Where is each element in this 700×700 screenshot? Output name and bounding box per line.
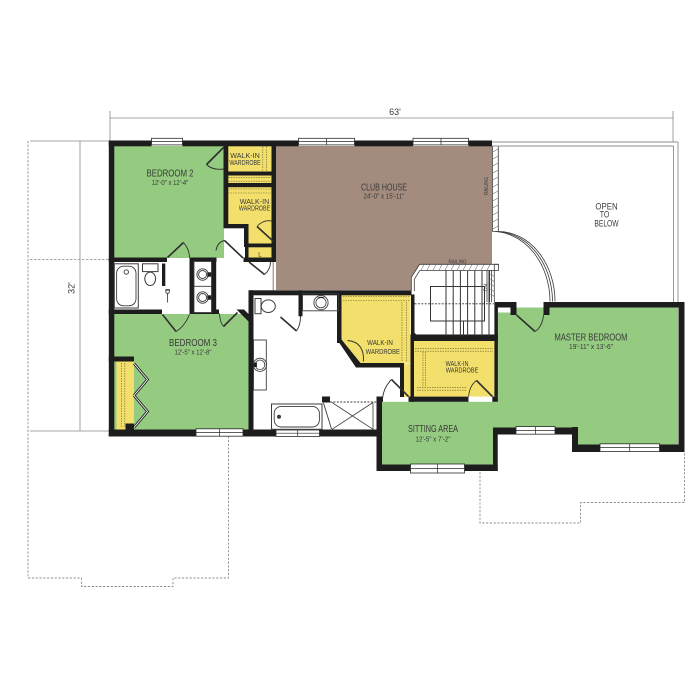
svg-text:WARDROBE: WARDROBE [229,160,261,167]
svg-text:DN: DN [484,284,490,292]
svg-text:RAILING: RAILING [484,177,490,195]
svg-text:L: L [258,252,262,259]
svg-text:32': 32' [67,282,77,294]
svg-text:BELOW: BELOW [594,218,618,229]
svg-text:12'-5" x 7'-2": 12'-5" x 7'-2" [416,434,451,443]
svg-text:19'-11" x 13'-6": 19'-11" x 13'-6" [569,342,613,351]
svg-text:24'-0" x 15'-11": 24'-0" x 15'-11" [364,192,405,201]
svg-text:12'-0" x 12'-4": 12'-0" x 12'-4" [152,178,189,187]
svg-text:WARDROBE: WARDROBE [366,349,401,356]
svg-text:RAILING: RAILING [449,260,467,266]
svg-text:WALK-IN: WALK-IN [367,340,393,347]
svg-text:12'-5" x 12'-8": 12'-5" x 12'-8" [175,347,212,356]
svg-text:63': 63' [389,107,401,117]
svg-text:WARDROBE: WARDROBE [446,368,479,375]
svg-text:WARDROBE: WARDROBE [239,206,271,213]
